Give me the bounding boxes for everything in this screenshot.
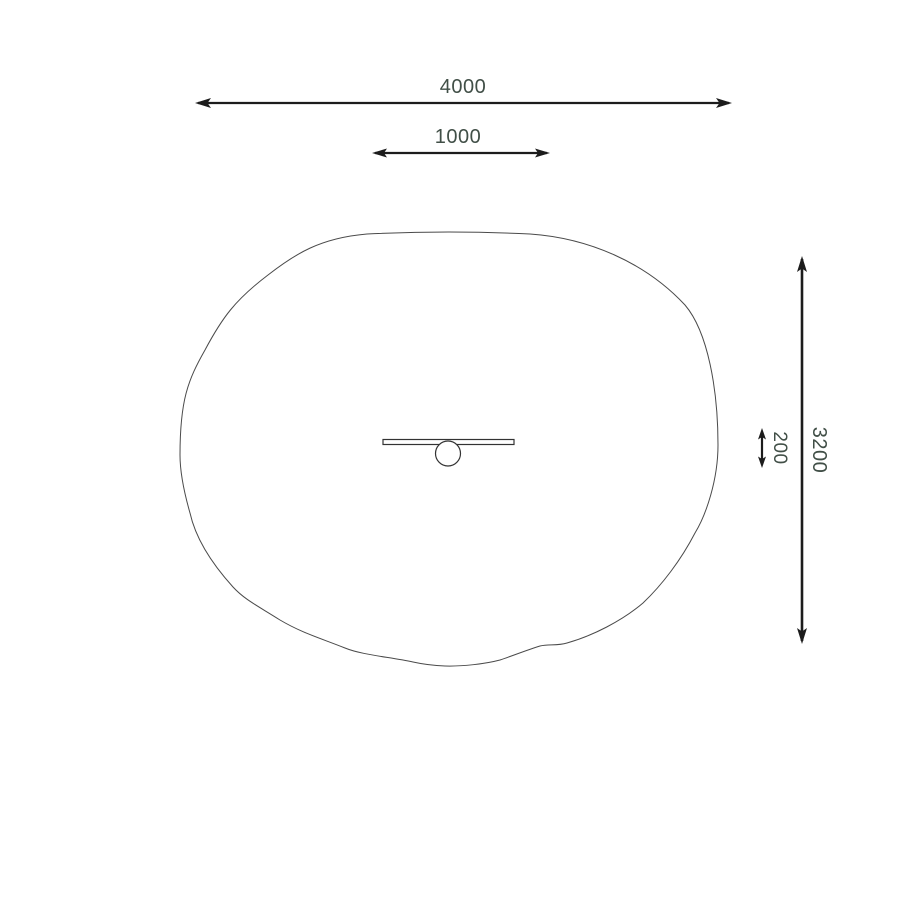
inner-height-dimension-label: 200 bbox=[729, 398, 829, 498]
drawing-canvas: 4000 1000 3200 200 bbox=[0, 0, 900, 900]
width-dimension-label: 4000 bbox=[413, 76, 513, 99]
width-dimension-arrow bbox=[195, 98, 732, 108]
inner-width-dimension-arrow bbox=[372, 149, 550, 158]
inner-width-dimension-label: 1000 bbox=[408, 126, 508, 149]
center-pivot-circle bbox=[436, 441, 461, 466]
